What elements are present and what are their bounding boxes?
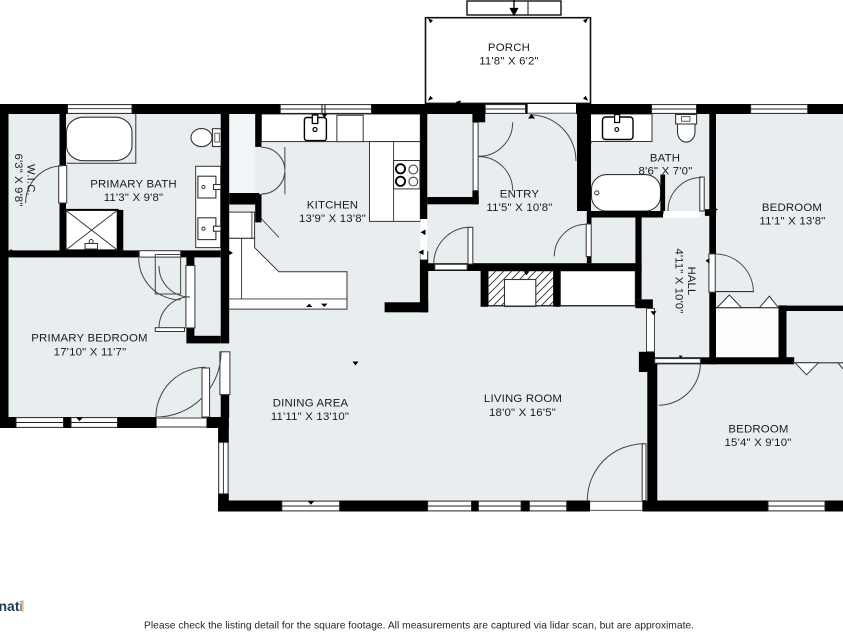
svg-text:11'11" X 13'10": 11'11" X 13'10" <box>271 411 349 423</box>
svg-text:LIVING ROOM: LIVING ROOM <box>484 393 562 405</box>
svg-text:13'9" X 13'8": 13'9" X 13'8" <box>299 213 366 225</box>
svg-text:11'3" X 9'8": 11'3" X 9'8" <box>104 192 164 204</box>
svg-text:11'8" X 6'2": 11'8" X 6'2" <box>479 56 539 68</box>
svg-text:4'11" X 10'0": 4'11" X 10'0" <box>673 249 685 314</box>
svg-text:11'5" X 10'8": 11'5" X 10'8" <box>486 202 552 214</box>
svg-text:15'4" X 9'10": 15'4" X 9'10" <box>725 437 792 449</box>
svg-text:W.I.C.: W.I.C. <box>25 164 37 196</box>
svg-text:8'6" X 7'0": 8'6" X 7'0" <box>639 166 693 178</box>
svg-text:BEDROOM: BEDROOM <box>728 424 788 436</box>
svg-text:PRIMARY BATH: PRIMARY BATH <box>90 179 177 191</box>
svg-text:ENTRY: ENTRY <box>500 189 540 201</box>
svg-text:HALL: HALL <box>685 267 697 296</box>
svg-text:11'1" X 13'8": 11'1" X 13'8" <box>759 216 825 228</box>
svg-text:17'10" X 11'7": 17'10" X 11'7" <box>54 347 127 359</box>
svg-text:nati: nati <box>0 598 23 614</box>
svg-text:6'3" X 9'8": 6'3" X 9'8" <box>12 154 24 207</box>
svg-text:DINING AREA: DINING AREA <box>273 398 349 410</box>
svg-text:PORCH: PORCH <box>488 42 530 54</box>
svg-text:Please check the listing detai: Please check the listing detail for the … <box>144 621 694 632</box>
svg-text:PRIMARY BEDROOM: PRIMARY BEDROOM <box>31 333 148 345</box>
svg-text:BEDROOM: BEDROOM <box>762 202 822 214</box>
svg-text:KITCHEN: KITCHEN <box>307 200 358 212</box>
svg-text:BATH: BATH <box>650 153 680 165</box>
svg-text:18'0" X 16'5": 18'0" X 16'5" <box>489 407 556 419</box>
